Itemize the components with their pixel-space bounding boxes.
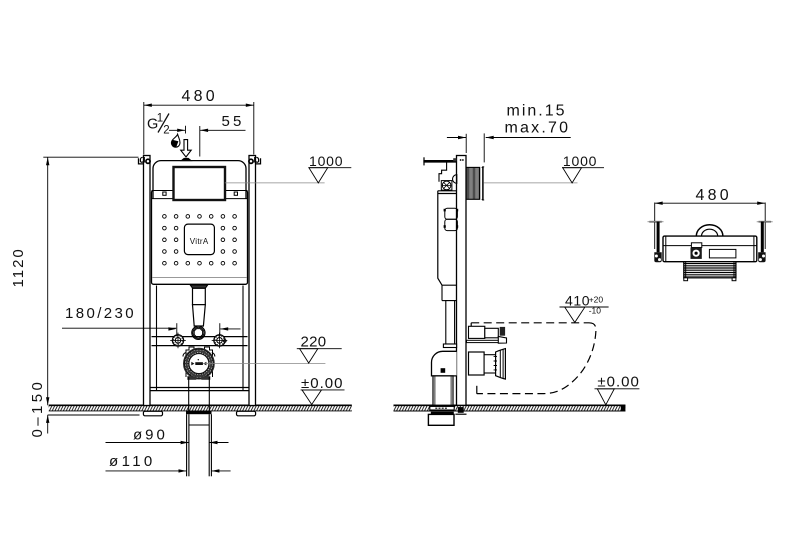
svg-text:180/230: 180/230: [65, 305, 136, 322]
svg-text:ø90: ø90: [133, 426, 168, 443]
svg-text:min.15: min.15: [507, 102, 567, 119]
svg-text:+20: +20: [589, 295, 604, 305]
svg-text:220: 220: [301, 334, 327, 351]
svg-text:-10: -10: [589, 305, 602, 315]
svg-text:max.70: max.70: [505, 120, 571, 137]
svg-text:1000: 1000: [563, 153, 597, 169]
svg-text:0–150: 0–150: [29, 379, 46, 438]
svg-text:2: 2: [163, 125, 169, 137]
svg-text:480: 480: [182, 88, 218, 105]
svg-text:VitrA: VitrA: [190, 237, 209, 246]
svg-text:1: 1: [157, 113, 163, 125]
svg-text:480: 480: [696, 187, 732, 204]
svg-text:ø110: ø110: [109, 453, 156, 470]
svg-text:1120: 1120: [10, 247, 27, 287]
svg-text:1000: 1000: [309, 153, 343, 169]
svg-text:±0.00: ±0.00: [597, 374, 639, 391]
svg-text:±0.00: ±0.00: [301, 375, 343, 392]
svg-text:410: 410: [565, 293, 590, 309]
svg-text:55: 55: [222, 113, 245, 130]
